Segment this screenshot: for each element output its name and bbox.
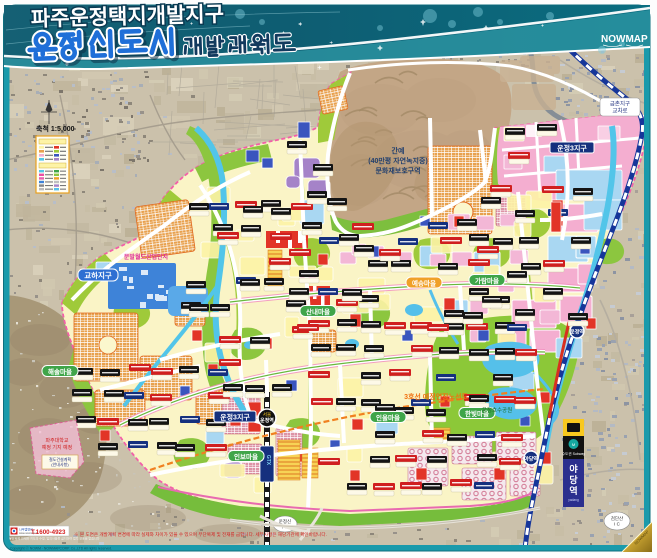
svg-text:간예: 간예 xyxy=(392,146,405,155)
svg-text:운정3지구: 운정3지구 xyxy=(557,144,587,153)
svg-text:인보마을: 인보마을 xyxy=(234,452,258,461)
svg-text:축척 1:5,000: 축척 1:5,000 xyxy=(36,124,75,133)
svg-text:운정역: 운정역 xyxy=(260,417,274,424)
svg-text:가람마을: 가람마을 xyxy=(475,276,499,285)
svg-text:금촌지구: 금촌지구 xyxy=(610,100,630,108)
svg-text:역: 역 xyxy=(569,485,577,496)
svg-text:야: 야 xyxy=(569,463,578,474)
svg-text:예송마을: 예송마을 xyxy=(412,279,436,288)
svg-text:M: M xyxy=(572,442,575,447)
svg-text:문화재보호구역: 문화재보호구역 xyxy=(375,166,420,175)
svg-text:3호선 예정연장노선도: 3호선 예정연장노선도 xyxy=(404,392,468,401)
svg-text:산내마을: 산내마을 xyxy=(306,307,330,316)
svg-text:교하지구: 교하지구 xyxy=(84,270,112,280)
svg-text:운정신: 운정신 xyxy=(279,518,291,524)
svg-text:yadang: yadang xyxy=(568,498,579,502)
svg-text:야당역: 야당역 xyxy=(524,456,538,463)
svg-text:※ 본 도면은 개발계획 변경에 따라 실제와 차이가 있을: ※ 본 도면은 개발계획 변경에 따라 실제와 차이가 있을 수 있으며 무단복… xyxy=(74,531,327,538)
svg-text:NOWMAP: NOWMAP xyxy=(601,34,648,45)
svg-text:문발월드산업단지: 문발월드산업단지 xyxy=(124,253,168,261)
svg-text:(40만평 자연녹지중): (40만평 자연녹지중) xyxy=(368,156,427,165)
svg-text:서울: 서울 xyxy=(263,411,271,418)
svg-text:예정 기지 예정: 예정 기지 예정 xyxy=(42,444,72,451)
svg-text:파주대학교: 파주대학교 xyxy=(45,437,68,444)
svg-text:Copyright ⓒ NOWM · NOWMAPCORP.: Copyright ⓒ NOWM · NOWMAPCORP. Co.,LTD A… xyxy=(10,546,112,551)
svg-text:운정호수공원: 운정호수공원 xyxy=(482,406,512,414)
svg-text:운정3지구: 운정3지구 xyxy=(220,413,250,422)
svg-text:인올마을: 인올마을 xyxy=(376,413,400,422)
svg-text:검단산: 검단산 xyxy=(611,515,623,521)
svg-text:GTX: GTX xyxy=(265,455,271,466)
svg-text:무단복제·전재와 지도의 수정, 임의사용을 금지하며 법적: 무단복제·전재와 지도의 수정, 임의사용을 금지하며 법적 보호를 받습니다 xyxy=(9,536,100,541)
svg-text:당: 당 xyxy=(569,474,578,485)
svg-text:수도권 Subway: 수도권 Subway xyxy=(562,451,585,456)
svg-text:I C: I C xyxy=(614,522,621,527)
svg-text:운정역: 운정역 xyxy=(570,329,584,336)
svg-text:T.1600-4923: T.1600-4923 xyxy=(31,529,66,536)
svg-text:교차로: 교차로 xyxy=(612,107,627,115)
svg-text:해솔마을: 해솔마을 xyxy=(48,367,72,376)
svg-text:(안내사항): (안내사항) xyxy=(51,461,69,467)
